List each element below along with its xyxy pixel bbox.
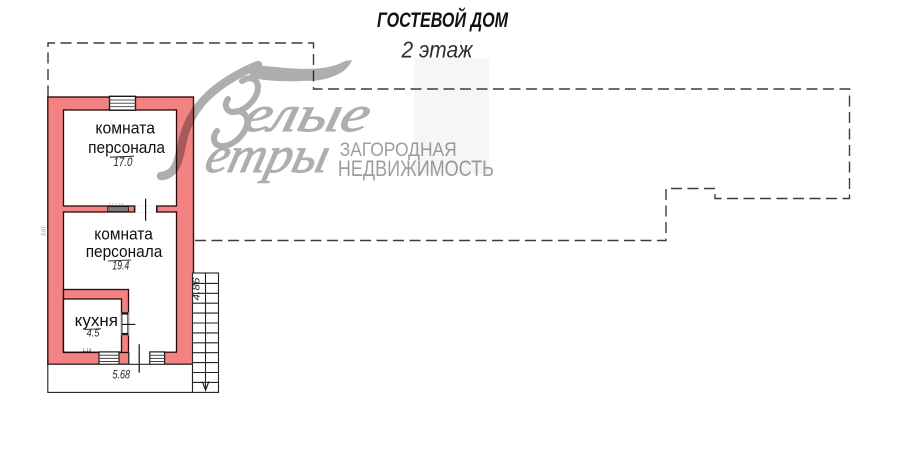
svg-text:персонала: персонала <box>86 242 163 261</box>
svg-text:4.86: 4.86 <box>192 277 203 301</box>
svg-text:1.1 x 2.0: 1.1 x 2.0 <box>108 202 124 207</box>
svg-text:5.68: 5.68 <box>113 369 131 381</box>
svg-text:комната: комната <box>94 224 153 243</box>
svg-text:етры: етры <box>200 128 336 184</box>
svg-text:19.4: 19.4 <box>112 260 129 272</box>
svg-text:4.5: 4.5 <box>87 328 100 340</box>
svg-text:персонала: персонала <box>88 138 165 157</box>
svg-text:комната: комната <box>95 119 155 138</box>
svg-text:1.13: 1.13 <box>83 348 92 353</box>
svg-text:3.07: 3.07 <box>42 226 48 236</box>
svg-text:2 этаж: 2 этаж <box>401 37 474 63</box>
svg-text:ГОСТЕВОЙ ДОМ: ГОСТЕВОЙ ДОМ <box>377 8 508 32</box>
svg-text:17.0: 17.0 <box>113 157 133 169</box>
svg-text:НЕДВИЖИМОСТЬ: НЕДВИЖИМОСТЬ <box>338 156 494 181</box>
